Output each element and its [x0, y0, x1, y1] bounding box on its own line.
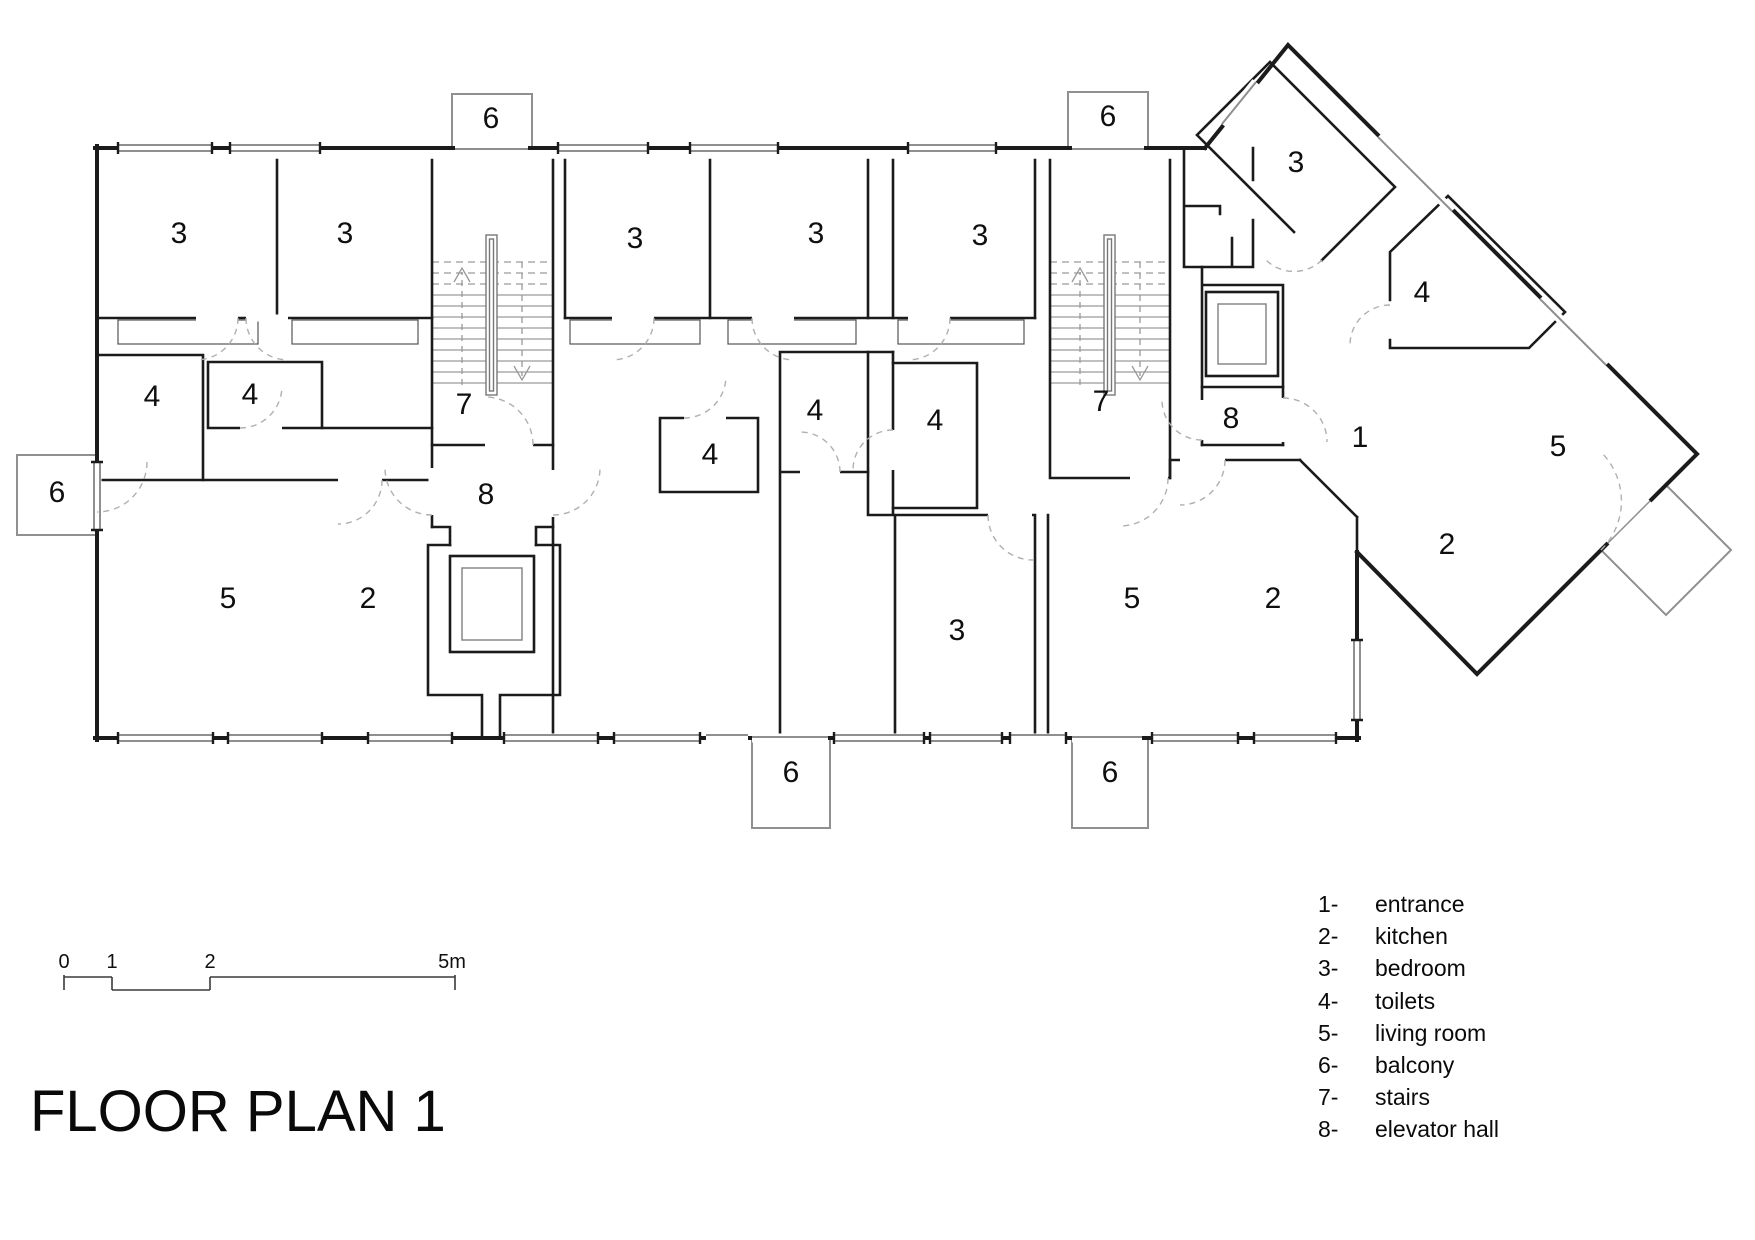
room-label: 4: [702, 438, 719, 471]
legend-item-label: elevator hall: [1375, 1113, 1499, 1145]
room-label: 3: [949, 614, 966, 647]
room-label: 6: [49, 476, 66, 509]
room-label: 2: [1265, 582, 1282, 615]
legend-item: 8-elevator hall: [1318, 1113, 1499, 1145]
door-arcs: [97, 260, 1621, 560]
legend-item: 3-bedroom: [1318, 952, 1499, 984]
room-label: 5: [220, 582, 237, 615]
room-label: 5: [1550, 430, 1567, 463]
room-label: 7: [1093, 385, 1110, 418]
scale-bar: 0125m: [58, 951, 465, 990]
room-label: 4: [242, 378, 259, 411]
legend-item-number: 6-: [1318, 1049, 1375, 1081]
room-label: 3: [627, 222, 644, 255]
room-label: 3: [808, 217, 825, 250]
legend-item-label: toilets: [1375, 985, 1435, 1017]
balcony-outlines: [17, 92, 1731, 828]
legend-item-number: 5-: [1318, 1017, 1375, 1049]
legend-item: 1-entrance: [1318, 888, 1499, 920]
closet-bands: [118, 320, 1024, 344]
legend-item-label: kitchen: [1375, 920, 1448, 952]
legend-item: 6-balcony: [1318, 1049, 1499, 1081]
floor-plan-canvas: 33333334444445552221666667788 0125m FLOO…: [0, 0, 1755, 1240]
legend-item-number: 1-: [1318, 888, 1375, 920]
room-label: 1: [1352, 421, 1369, 454]
room-label: 4: [807, 394, 824, 427]
walls-inner: [97, 62, 1565, 738]
room-label: 8: [478, 478, 495, 511]
room-label: 3: [972, 219, 989, 252]
windows-layer: [91, 82, 1650, 744]
room-label: 7: [456, 388, 473, 421]
room-label: 6: [783, 756, 800, 789]
legend-item: 2-kitchen: [1318, 920, 1499, 952]
room-label: 2: [1439, 528, 1456, 561]
page-title: FLOOR PLAN 1: [30, 1078, 446, 1145]
legend: 1-entrance2-kitchen3-bedroom4-toilets5-l…: [1318, 888, 1499, 1146]
scale-tick-label: 0: [58, 951, 69, 973]
legend-item-number: 8-: [1318, 1113, 1375, 1145]
room-label: 4: [927, 404, 944, 437]
legend-item-number: 3-: [1318, 952, 1375, 984]
legend-item-number: 2-: [1318, 920, 1375, 952]
room-label: 3: [1288, 146, 1305, 179]
scale-tick-label: 5m: [438, 951, 466, 973]
room-label: 4: [1414, 276, 1431, 309]
room-label: 5: [1124, 582, 1141, 615]
stairs-layer: [432, 235, 1170, 395]
room-label: 6: [1102, 756, 1119, 789]
room-label: 4: [144, 380, 161, 413]
legend-item-number: 7-: [1318, 1081, 1375, 1113]
legend-item: 7-stairs: [1318, 1081, 1499, 1113]
legend-item-label: entrance: [1375, 888, 1465, 920]
room-label: 2: [360, 582, 377, 615]
legend-item-label: living room: [1375, 1017, 1486, 1049]
room-label: 3: [337, 217, 354, 250]
legend-item: 5-living room: [1318, 1017, 1499, 1049]
room-label: 3: [171, 217, 188, 250]
legend-item-label: bedroom: [1375, 952, 1466, 984]
legend-item: 4-toilets: [1318, 985, 1499, 1017]
room-label: 8: [1223, 402, 1240, 435]
room-label: 6: [483, 102, 500, 135]
legend-item-label: balcony: [1375, 1049, 1454, 1081]
legend-item-number: 4-: [1318, 985, 1375, 1017]
scale-tick-label: 2: [204, 951, 215, 973]
legend-item-label: stairs: [1375, 1081, 1430, 1113]
room-label: 6: [1100, 100, 1117, 133]
scale-tick-label: 1: [106, 951, 117, 973]
